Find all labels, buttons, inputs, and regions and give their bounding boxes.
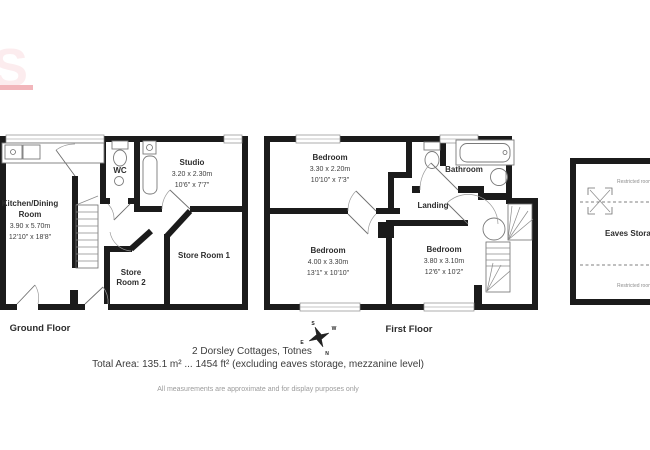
first-floor-plan: Bedroom 3.30 x 2.20m 10'10" x 7'3" Bathr… xyxy=(264,135,538,335)
kitchen-label-line1: Kitchen/Dining xyxy=(2,199,59,208)
bedroom-left-dim-imperial: 13'1" x 10'10" xyxy=(307,270,350,277)
bathtub-icon xyxy=(456,140,514,165)
bedroom-top-dim-metric: 3.30 x 2.20m xyxy=(310,166,351,173)
floorplan-image: S xyxy=(0,0,650,450)
studio-dim-metric: 3.20 x 2.30m xyxy=(172,171,213,178)
restricted-height-note-bottom: Restricted room height xyxy=(617,283,650,289)
skylight-icon xyxy=(588,188,612,214)
bedroom-left-dim-metric: 4.00 x 3.30m xyxy=(308,259,349,266)
studio-window xyxy=(224,135,242,143)
store-room-2-label-line2: Room 2 xyxy=(116,278,146,287)
footer: 2 Dorsley Cottages, Totnes Total Area: 1… xyxy=(92,346,424,393)
ground-floor-plan: Kitchen/Dining Room 3.90 x 5.70m 12'10" … xyxy=(0,135,248,334)
compass-west: W xyxy=(332,326,337,332)
bedroom-right-label: Bedroom xyxy=(426,245,461,254)
kitchen-dim-metric: 3.90 x 5.70m xyxy=(10,223,51,230)
disclaimer-text: All measurements are approximate and for… xyxy=(157,386,359,393)
bedroom-left-label: Bedroom xyxy=(310,246,345,255)
stair-newel-circle xyxy=(483,218,505,240)
bathroom-sink-icon xyxy=(491,169,508,186)
compass-north: N xyxy=(325,351,329,357)
studio-dim-imperial: 10'6" x 7'7" xyxy=(175,182,210,189)
studio-shower-icon xyxy=(143,141,157,194)
bedroom-top-dim-imperial: 10'10" x 7'3" xyxy=(311,177,350,184)
bedroom-right-dim-imperial: 12'6" x 10'2" xyxy=(425,269,464,276)
ground-floor-label: Ground Floor xyxy=(10,323,71,334)
ground-staircase-icon xyxy=(76,196,98,268)
kitchen-dim-imperial: 12'10" x 18'8" xyxy=(9,234,52,241)
total-area-text: Total Area: 135.1 m² ... 1454 ft² (exclu… xyxy=(92,359,424,370)
wc-toilet-icon xyxy=(112,141,128,186)
bedroom-top-label: Bedroom xyxy=(312,153,347,162)
agency-logo-fragment: S xyxy=(0,38,33,98)
bathroom-label: Bathroom xyxy=(445,165,483,174)
first-floor-staircase-icon xyxy=(483,204,533,292)
bedroom-left-window xyxy=(300,303,360,311)
compass-star-icon xyxy=(309,327,329,347)
kitchen-counter-sink-icon xyxy=(2,143,104,163)
studio-label: Studio xyxy=(180,158,205,167)
wc-label: WC xyxy=(113,166,127,175)
eaves-storage-label: Eaves Storage xyxy=(605,229,650,238)
bedroom-right-window xyxy=(424,303,474,311)
kitchen-window xyxy=(6,135,104,143)
floorplan-page: S xyxy=(0,0,650,450)
bedroom-top-window xyxy=(296,135,340,143)
restricted-height-note-top: Restricted room height xyxy=(617,179,650,185)
compass-south: S xyxy=(311,321,315,327)
store-room-2-label-line1: Store xyxy=(121,268,142,277)
landing-label: Landing xyxy=(417,201,448,210)
kitchen-label-line2: Room xyxy=(19,210,42,219)
bedroom-right-dim-metric: 3.80 x 3.10m xyxy=(424,258,465,265)
store-room-1-label: Store Room 1 xyxy=(178,251,231,260)
first-floor-label: First Floor xyxy=(386,324,433,335)
logo-accent-bar xyxy=(0,85,33,90)
eaves-storage-plan: Restricted room height Eaves Storage Res… xyxy=(570,158,650,305)
property-address: 2 Dorsley Cottages, Totnes xyxy=(192,346,312,357)
